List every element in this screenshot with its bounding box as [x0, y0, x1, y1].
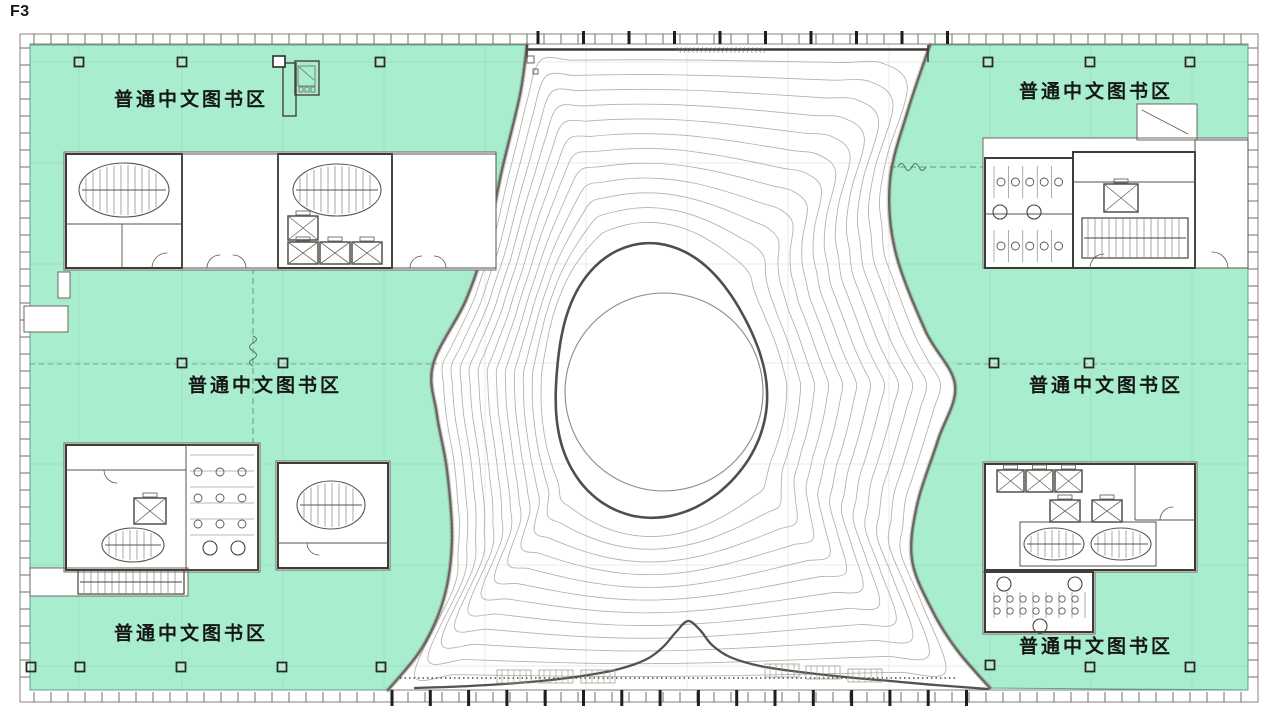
zone-label-top-right: 普通中文图书区 [1019, 77, 1173, 104]
top-bridge-band [527, 45, 928, 74]
bottom-entry-features [400, 621, 988, 689]
zone-label-bottom-left: 普通中文图书区 [114, 619, 268, 646]
floor-plan: F3 普通中文图书区 普通中文图书区 普通中文图书区 普通中文图书区 普通中文图… [0, 0, 1267, 713]
zone-label-bottom-right: 普通中文图书区 [1019, 632, 1173, 659]
zone-label-mid-left: 普通中文图书区 [188, 371, 342, 398]
floor-label: F3 [10, 3, 30, 21]
zone-label-mid-right: 普通中文图书区 [1029, 371, 1183, 398]
zone-label-top-left: 普通中文图书区 [114, 85, 268, 112]
central-void [556, 243, 767, 518]
